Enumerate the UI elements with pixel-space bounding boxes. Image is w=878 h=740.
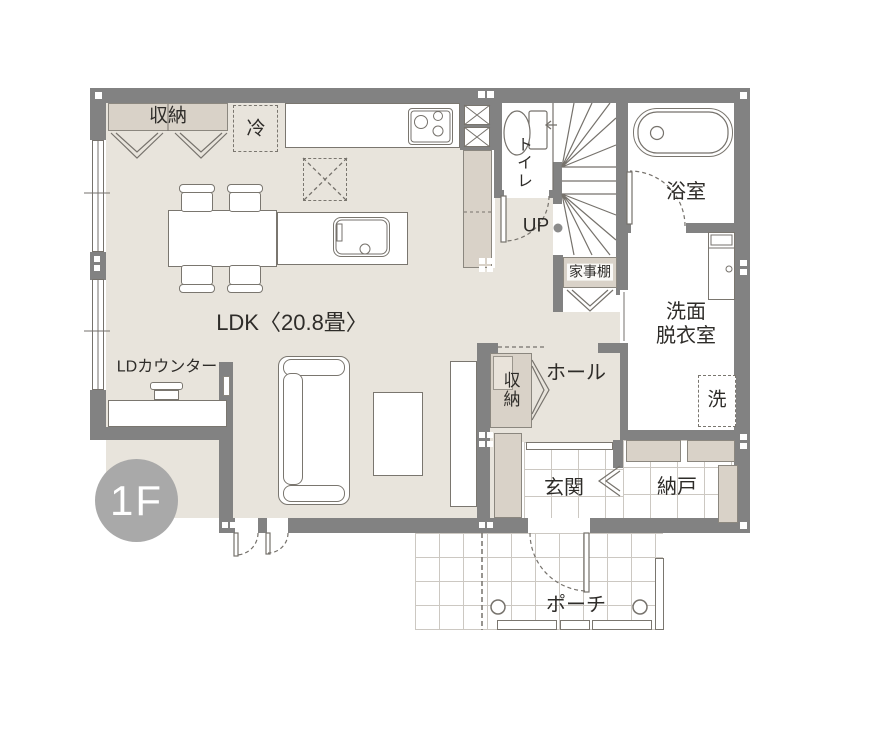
kitchen-closet-label: 収納 [149,106,187,129]
porch-label: ポーチ [546,593,606,617]
dashed-x-icon [303,158,347,201]
toilet-label: トイレ [510,136,534,190]
vanity-detail [709,235,734,272]
ldk-label: LDK〈20.8畳〉 [216,310,368,336]
washroom-label-line1: 洗面 [666,300,706,324]
washroom-label-line2: 脱衣室 [656,324,716,348]
floor-badge-text: 1F [110,477,163,525]
storeroom-label: 納戸 [657,475,697,499]
washer-label: 洗 [707,390,726,413]
washroom-label: 洗面 脱衣室 [656,300,716,348]
housework-shelf-label: 家事棚 [567,264,613,281]
fridge-label: 冷 [246,119,265,142]
door-swing-arcs [236,171,685,591]
stove-burners [411,111,450,142]
window-glazing [84,140,110,390]
entrance-label: 玄関 [544,476,584,500]
stairs [553,103,616,255]
sink-detail [336,220,387,254]
floor-plan-1f: LDK〈20.8畳〉 LDカウンター 収納 冷 トイレ UP 家事棚 浴室 洗面… [0,0,878,740]
ld-counter-label: LDカウンター [117,357,217,376]
up-label: UP [523,216,549,239]
pipe-space-x-icon [464,105,490,147]
stair-direction-arrow [546,121,557,129]
bathroom-label: 浴室 [666,180,706,204]
hall-label: ホール [546,361,606,385]
floor-badge: 1F [95,459,178,542]
up-start-dot [554,224,563,233]
bathtub-detail [638,112,728,153]
hall-closet-label: 収納 [498,371,523,409]
